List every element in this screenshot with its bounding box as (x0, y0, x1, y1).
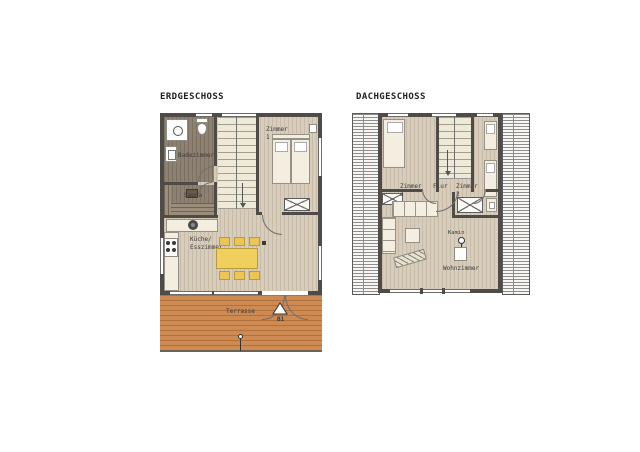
chair (234, 271, 245, 280)
erdgeschoss-title: ERDGESCHOSS (160, 92, 224, 102)
coffee-table (405, 228, 420, 243)
shower-icon (166, 119, 188, 141)
wall-outer-left (378, 113, 382, 293)
window (318, 138, 322, 176)
stair-edge (439, 178, 471, 179)
double-bed-left (272, 139, 291, 184)
staircase-attic (439, 117, 471, 179)
burner (172, 241, 176, 245)
floorplan-sheet: ERDGESCHOSS Badezimmer Sauna Zimmer 1 (0, 0, 640, 452)
wall (256, 117, 259, 215)
viewpoint-marker-icon (272, 302, 288, 315)
window (388, 113, 408, 117)
chair (249, 271, 260, 280)
wall (436, 117, 439, 179)
double-bed-right (291, 139, 310, 184)
window (222, 113, 256, 117)
burner (172, 248, 176, 252)
pillow (486, 124, 495, 134)
fireplace-icon (454, 247, 467, 261)
bed-single (383, 119, 405, 168)
wall (214, 117, 217, 166)
window (477, 113, 493, 117)
dining-table (216, 248, 258, 269)
terrace-edge (160, 350, 322, 352)
chair (249, 237, 260, 246)
room-label-badezimmer: Badezimmer (178, 152, 214, 160)
window (160, 238, 164, 274)
nightstand (309, 124, 317, 133)
dachgeschoss-title: DACHGESCHOSS (356, 92, 426, 102)
stair-divider (236, 117, 237, 209)
roof-hatch-left (352, 113, 380, 295)
wardrobe-icon (284, 198, 310, 211)
wall (452, 215, 502, 218)
window-post (442, 288, 445, 294)
sauna-bench-side (164, 185, 171, 215)
kitchen-sink-drain (191, 223, 195, 227)
terrace-symbol-stem (240, 339, 241, 351)
window (432, 113, 456, 117)
chair (234, 237, 245, 246)
wall (436, 179, 439, 192)
wall (160, 215, 218, 218)
pillow (486, 163, 495, 173)
fireplace-flue-icon (458, 237, 465, 244)
bed-single (484, 121, 497, 150)
stair-arrow (242, 183, 243, 203)
wall (282, 212, 318, 215)
stair-divider (454, 117, 455, 179)
room-label-wohnzimmer: Wohnzimmer (443, 265, 479, 273)
window (196, 113, 212, 117)
roof-hatch-right (502, 113, 530, 295)
chair (219, 271, 230, 280)
dresser (486, 198, 497, 212)
pillow (387, 122, 403, 133)
wall (382, 189, 422, 192)
room-label-terrasse: Terrasse (226, 308, 255, 316)
burner (166, 248, 170, 252)
wall-outer-right (498, 113, 502, 293)
window (390, 289, 470, 293)
window-post (420, 288, 423, 294)
wall (214, 182, 217, 218)
wall (164, 182, 198, 185)
sofa-left (382, 217, 396, 254)
stair-arrow (447, 150, 448, 172)
viewpoint-marker-label: B1 (277, 316, 284, 324)
pillow (294, 142, 307, 152)
column-post (262, 241, 266, 245)
burner (166, 241, 170, 245)
room-label-kamin: Kamin (448, 230, 465, 237)
stair-arrow-head-icon (445, 171, 451, 176)
sauna-bench (164, 203, 214, 215)
staircase-ground (218, 117, 256, 209)
wall (471, 117, 474, 179)
bath-sink-icon (165, 146, 177, 162)
chair (219, 237, 230, 246)
stair-arrow-head-icon (240, 203, 246, 208)
pillow (275, 142, 288, 152)
window (318, 246, 322, 280)
